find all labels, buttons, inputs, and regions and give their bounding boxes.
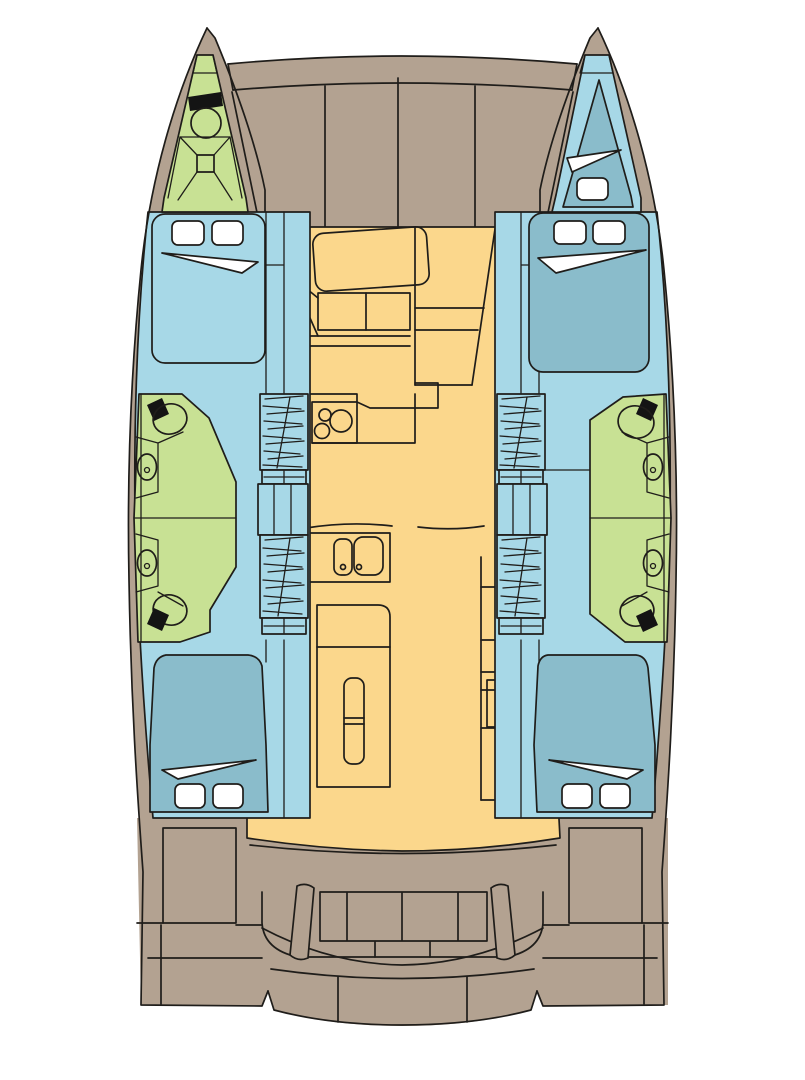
- port-companionway: [258, 394, 308, 634]
- pillow: [175, 784, 205, 808]
- pillow: [600, 784, 630, 808]
- catamaran-deck-plan: [0, 0, 805, 1080]
- starboard-aft-cabin: [534, 655, 655, 812]
- starboard-companionway: [497, 394, 547, 634]
- double-berth: [529, 213, 649, 372]
- pillow: [562, 784, 592, 808]
- pillow: [172, 221, 204, 245]
- double-berth: [534, 655, 655, 812]
- deck-plan-page: [0, 0, 805, 1080]
- stair-landing: [258, 484, 308, 535]
- foredeck: [228, 56, 580, 227]
- pillow: [577, 178, 608, 200]
- stair-landing: [497, 484, 547, 535]
- starboard-forward-cabin: [529, 213, 649, 372]
- pillow: [212, 221, 243, 245]
- starboard-heads: [590, 394, 671, 642]
- pillow: [554, 221, 586, 244]
- double-berth: [150, 655, 268, 812]
- pillow: [593, 221, 625, 244]
- port-aft-cabin: [150, 655, 268, 812]
- pillow: [213, 784, 243, 808]
